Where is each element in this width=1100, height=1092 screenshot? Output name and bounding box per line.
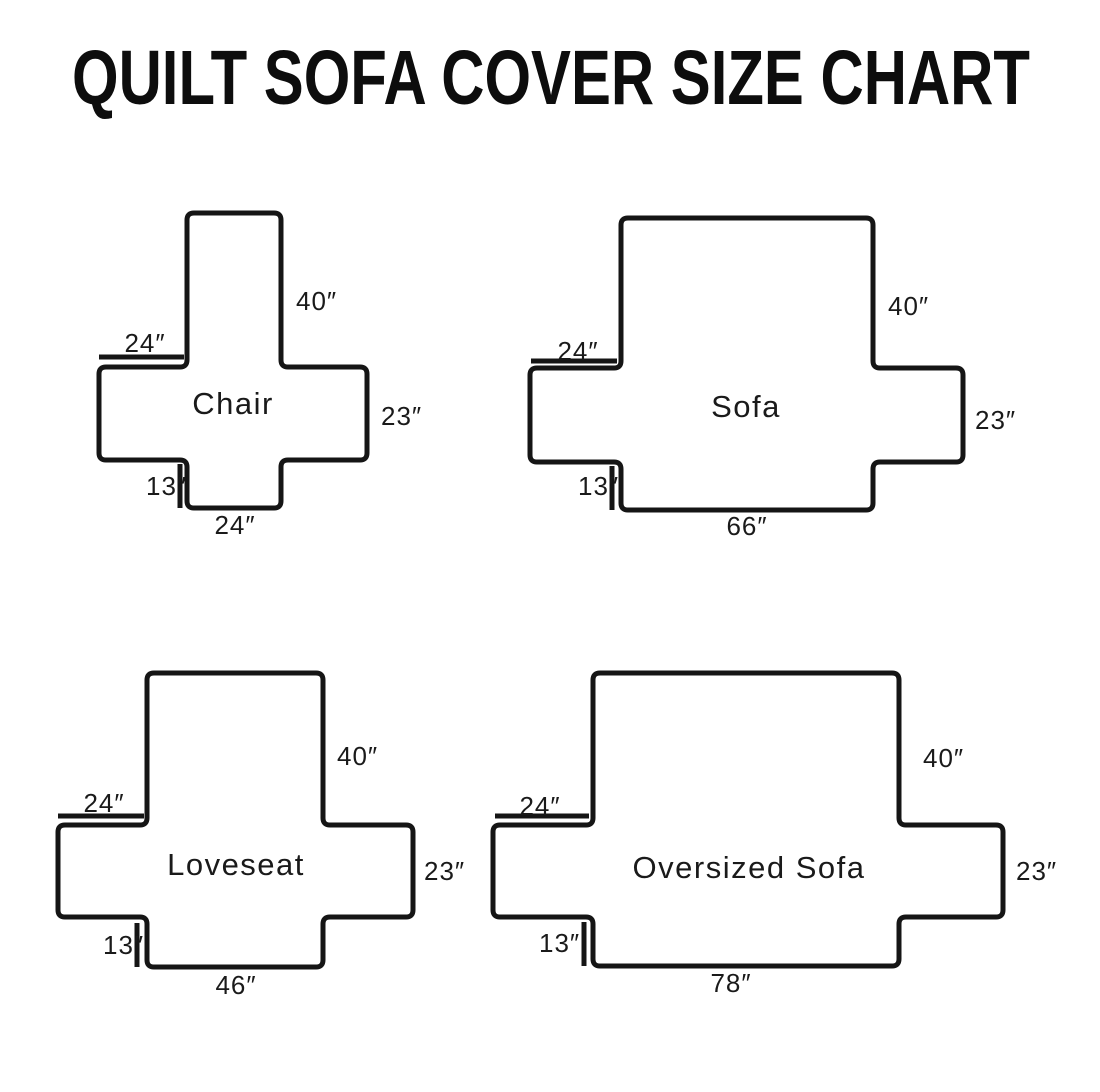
loveseat-arm-width-label: 24″ [83,790,124,816]
sofa-bottom-width-label: 66″ [726,513,767,539]
loveseat-bottom-width-label: 46″ [215,972,256,998]
loveseat-side-height-label: 23″ [424,858,465,884]
chair-name-label: Chair [192,388,274,419]
chair-back-height-label: 40″ [296,288,337,314]
oversized-sofa-name-label: Oversized Sofa [633,852,866,883]
oversized-sofa-outline [493,673,1003,966]
sofa-arm-width-label: 24″ [557,338,598,364]
oversized-sofa-arm-width-label: 24″ [519,793,560,819]
size-chart-page: QUILT SOFA COVER SIZE CHART 40″ 24″ Chai… [0,0,1100,1092]
oversized-sofa-bottom-width-label: 78″ [710,970,751,996]
sofa-side-height-label: 23″ [975,407,1016,433]
sofa-back-height-label: 40″ [888,293,929,319]
sofa-skirt-height-label: 13″ [578,473,619,499]
loveseat-back-height-label: 40″ [337,743,378,769]
oversized-sofa-skirt-height-label: 13″ [539,930,580,956]
loveseat-outline [58,673,413,967]
chair-bottom-width-label: 24″ [214,512,255,538]
oversized-sofa-side-height-label: 23″ [1016,858,1057,884]
loveseat-skirt-height-label: 13″ [103,932,144,958]
chair-outline [99,213,367,508]
oversized-sofa-back-height-label: 40″ [923,745,964,771]
chair-skirt-height-label: 13″ [146,473,187,499]
sofa-name-label: Sofa [711,391,781,422]
loveseat-name-label: Loveseat [167,849,305,880]
chair-side-height-label: 23″ [381,403,422,429]
chair-arm-width-label: 24″ [124,330,165,356]
